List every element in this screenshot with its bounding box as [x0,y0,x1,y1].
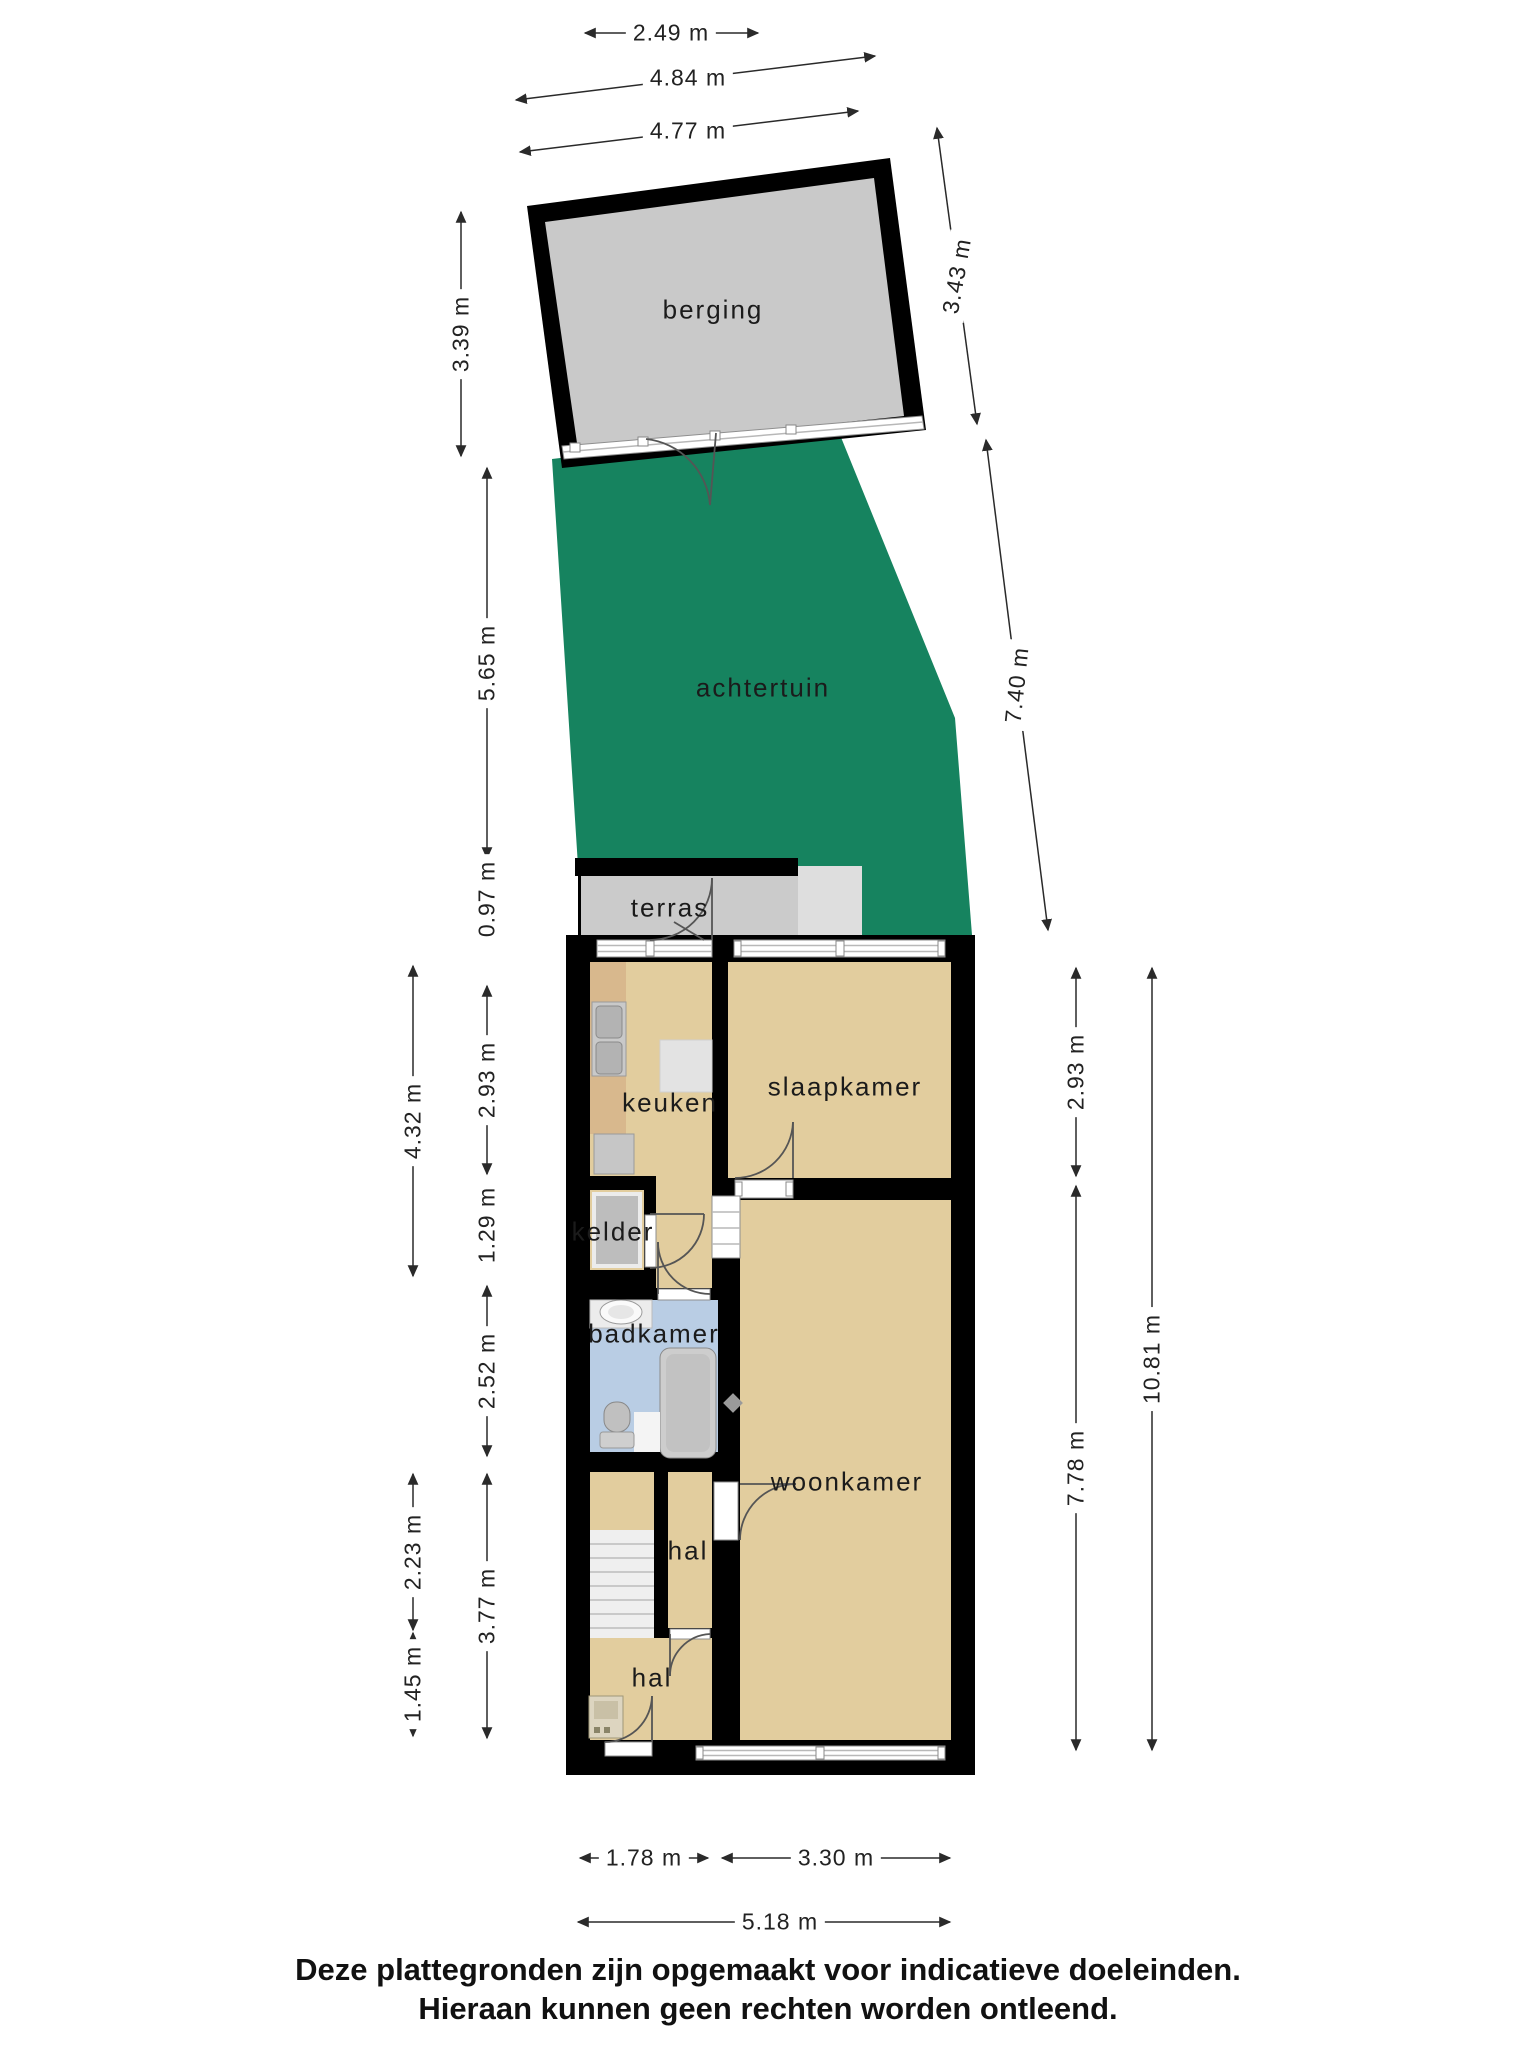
glazed-panel-corridor [712,1196,740,1258]
livingroom-front-window [696,1746,945,1760]
dim-label-2-49: 2.49 m [626,19,716,48]
dim-label-0-97: 0.97 m [473,854,502,944]
dim-label-1-29: 1.29 m [473,1180,502,1270]
dim-label-2-23: 2.23 m [399,1507,428,1597]
corridor-keuken [656,1176,712,1288]
dim-label-4-84: 4.84 m [643,64,733,93]
toilet-tank [600,1432,634,1448]
dim-label-2-93-right: 2.93 m [1062,1027,1091,1117]
room-label-achtertuin: achtertuin [696,673,830,704]
meter-cupboard [589,1696,623,1738]
dim-label-3-77: 3.77 m [473,1561,502,1651]
dim-label-5-65: 5.65 m [473,618,502,708]
dim-label-4-77: 4.77 m [643,117,733,146]
terrace-terras [575,858,862,936]
floor-plan-drawing [0,0,1536,2048]
kitchen-sink [596,1006,622,1038]
kitchen-stove [596,1042,622,1074]
dim-label-1-78: 1.78 m [599,1844,689,1873]
dim-label-5-18: 5.18 m [735,1908,825,1937]
bathtub-inner [666,1354,710,1452]
room-label-hal-upper: hal [668,1536,709,1567]
kitchen-table [660,1040,712,1092]
room-label-berging: berging [663,295,764,326]
room-label-terras: terras [631,893,709,924]
room-label-slaapkamer: slaapkamer [768,1072,922,1103]
room-label-badkamer: badkamer [588,1319,720,1350]
floor-plan: berging achtertuin terras keuken slaapka… [0,0,1536,2048]
room-label-kelder: kelder [572,1217,655,1248]
kitchen-appliance [594,1134,634,1174]
toilet-bowl [604,1402,630,1432]
disclaimer-line-2: Hieraan kunnen geen rechten worden ontle… [0,1989,1536,2028]
dim-label-10-81: 10.81 m [1138,1307,1167,1411]
dim-label-3-30: 3.30 m [791,1844,881,1873]
dim-label-1-45: 1.45 m [399,1639,428,1729]
dim-label-4-32: 4.32 m [399,1076,428,1166]
washbasin-bowl [608,1305,634,1319]
dim-label-2-93-left: 2.93 m [473,1035,502,1125]
bedroom-window [734,940,945,957]
staircase [590,1530,654,1638]
dim-label-7-78: 7.78 m [1062,1423,1091,1513]
room-label-hal-lower: hal [632,1663,673,1694]
room-label-woonkamer: woonkamer [771,1467,923,1498]
dim-label-2-52: 2.52 m [473,1326,502,1416]
disclaimer: Deze plattegronden zijn opgemaakt voor i… [0,1950,1536,2028]
shower-step [634,1412,660,1452]
disclaimer-line-1: Deze plattegronden zijn opgemaakt voor i… [0,1950,1536,1989]
room-slaapkamer [728,962,951,1178]
dim-label-3-39: 3.39 m [447,289,476,379]
room-label-keuken: keuken [622,1088,718,1119]
